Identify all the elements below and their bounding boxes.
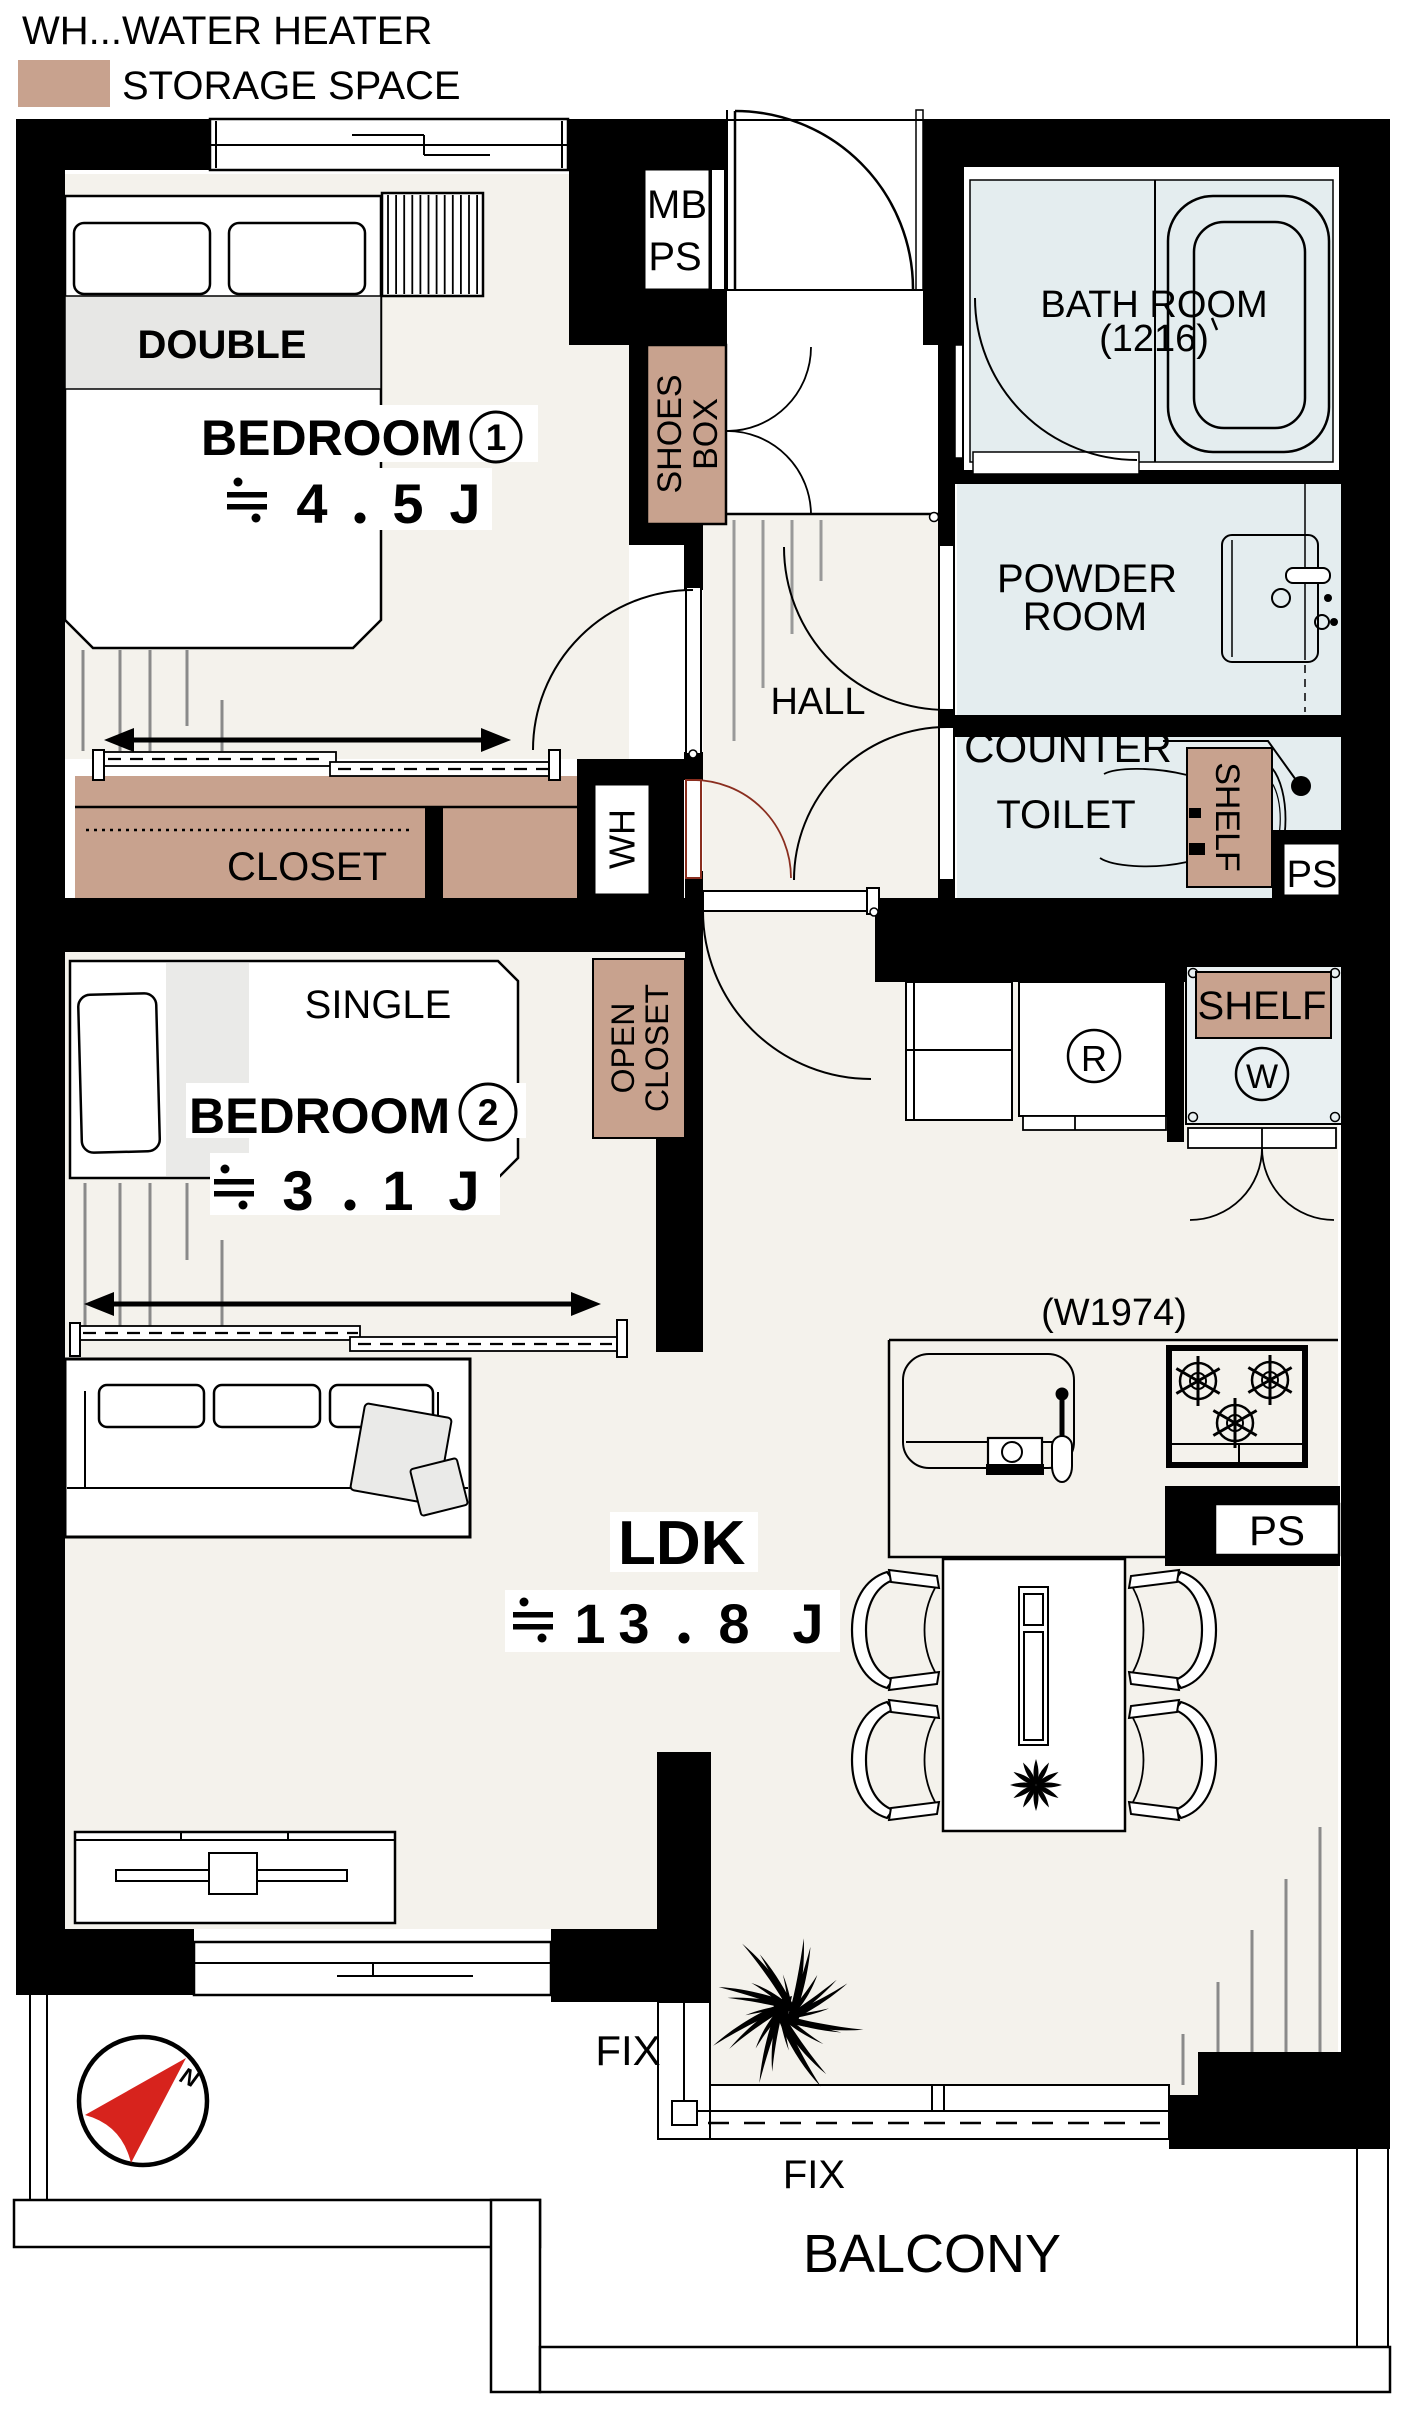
- svg-text:CLOSET: CLOSET: [639, 984, 675, 1112]
- svg-text:COUNTER: COUNTER: [964, 724, 1172, 771]
- svg-text:ROOM: ROOM: [1023, 595, 1147, 639]
- svg-text:4: 4: [296, 472, 327, 535]
- svg-text:BOX: BOX: [687, 398, 725, 470]
- svg-text:PS: PS: [1249, 1507, 1305, 1554]
- svg-text:BEDROOM: BEDROOM: [189, 1088, 450, 1144]
- svg-text:STORAGE SPACE: STORAGE SPACE: [122, 64, 461, 108]
- svg-text:BALCONY: BALCONY: [803, 2224, 1061, 2284]
- svg-text:2: 2: [478, 1092, 499, 1133]
- svg-text:1: 1: [574, 1592, 605, 1655]
- svg-text:J: J: [792, 1592, 823, 1655]
- svg-text:1: 1: [382, 1159, 413, 1222]
- svg-text:1: 1: [486, 417, 507, 458]
- svg-text:DOUBLE: DOUBLE: [138, 323, 307, 367]
- svg-text:SHOES: SHOES: [651, 374, 689, 493]
- svg-text:3: 3: [282, 1159, 313, 1222]
- svg-text:SINGLE: SINGLE: [305, 983, 452, 1027]
- svg-text:BEDROOM: BEDROOM: [201, 410, 462, 466]
- svg-text:PS: PS: [1287, 854, 1338, 896]
- svg-text:WH: WH: [602, 809, 643, 869]
- svg-text:J: J: [448, 1159, 479, 1222]
- svg-text:PS: PS: [648, 235, 701, 279]
- svg-text:R: R: [1081, 1038, 1107, 1079]
- svg-text:MB: MB: [647, 183, 707, 227]
- svg-text:(W1974): (W1974): [1041, 1292, 1187, 1334]
- svg-text:W: W: [1246, 1058, 1278, 1096]
- svg-text:SHELF: SHELF: [1198, 984, 1327, 1028]
- svg-text:OPEN: OPEN: [605, 1003, 641, 1094]
- svg-text:FIX: FIX: [783, 2153, 845, 2197]
- svg-text:3: 3: [618, 1592, 649, 1655]
- svg-text:TOILET: TOILET: [996, 793, 1135, 837]
- svg-text:J: J: [449, 472, 480, 535]
- svg-text:LDK: LDK: [618, 1509, 746, 1578]
- svg-text:CLOSET: CLOSET: [227, 845, 387, 889]
- svg-text:(1216): (1216): [1099, 318, 1209, 360]
- svg-text:FIX: FIX: [595, 2027, 660, 2074]
- svg-text:8: 8: [718, 1592, 749, 1655]
- svg-text:HALL: HALL: [770, 681, 865, 723]
- svg-text:WH...WATER HEATER: WH...WATER HEATER: [22, 9, 432, 53]
- svg-text:SHELF: SHELF: [1208, 762, 1246, 872]
- svg-text:5: 5: [392, 472, 423, 535]
